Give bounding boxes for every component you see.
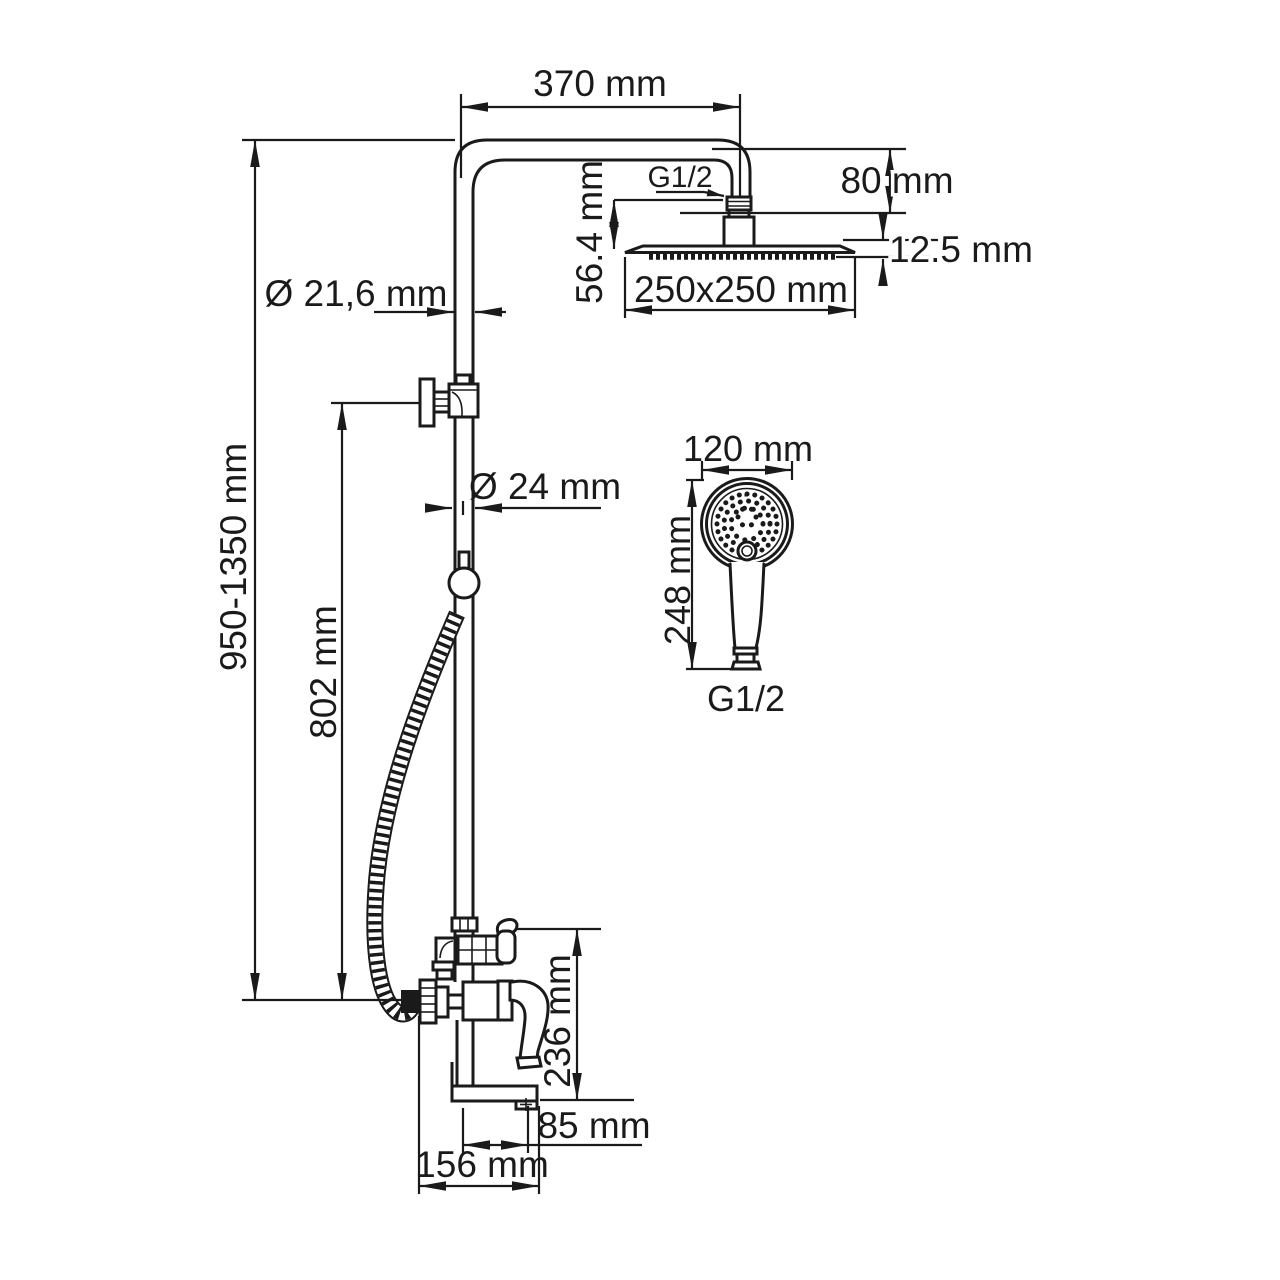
diverter-wheel	[449, 568, 479, 598]
valve-cap	[497, 931, 515, 963]
column-height-label: 950-1350 mm	[213, 443, 254, 671]
pipe-union-nut	[452, 918, 477, 931]
hose-outlet-height-label: 802 mm	[303, 605, 344, 739]
spout-reach-label: 85 mm	[537, 1105, 650, 1146]
shower-column-technical-drawing: 370 mm 80 mm G1/2 56.4 mm 12.5 mm 250x25…	[0, 0, 1280, 1280]
knurled-ring	[420, 980, 436, 1023]
mixer-width-label: 156 mm	[415, 1144, 549, 1185]
arm-drop-label: 80 mm	[840, 160, 953, 201]
hand-shower-length-label: 248 mm	[657, 515, 698, 645]
hand-shower-thread-nut	[732, 662, 760, 669]
mode-button	[738, 542, 756, 560]
head-thickness-label: 12.5 mm	[889, 229, 1033, 270]
hand-shower-thread-label: G1/2	[707, 678, 785, 719]
diverter-stem	[459, 552, 469, 569]
head-offset-label: 56.4 mm	[569, 160, 610, 304]
hand-shower-diameter-label: 120 mm	[683, 428, 813, 469]
upper-pipe-diameter-label: Ø 21,6 mm	[265, 273, 448, 314]
mixer-height-label: 236 mm	[537, 954, 578, 1088]
hose-connection-nut	[402, 991, 419, 1012]
head-size-label: 250x250 mm	[634, 269, 848, 310]
head-thread-nut	[727, 197, 751, 210]
lower-pipe-diameter-label: Ø 24 mm	[469, 466, 621, 507]
bracket-plate	[452, 1086, 537, 1101]
arm-length-label: 370 mm	[533, 63, 667, 104]
head-thread-label: G1/2	[647, 161, 712, 194]
paper-background	[0, 0, 1280, 1280]
head-ball-joint	[724, 217, 754, 246]
drawing-canvas: 370 mm 80 mm G1/2 56.4 mm 12.5 mm 250x25…	[0, 0, 1280, 1280]
slider-body	[449, 384, 478, 417]
rain-shower-plate	[625, 246, 855, 253]
slider-knob	[420, 379, 434, 426]
slider-holder	[420, 375, 478, 426]
